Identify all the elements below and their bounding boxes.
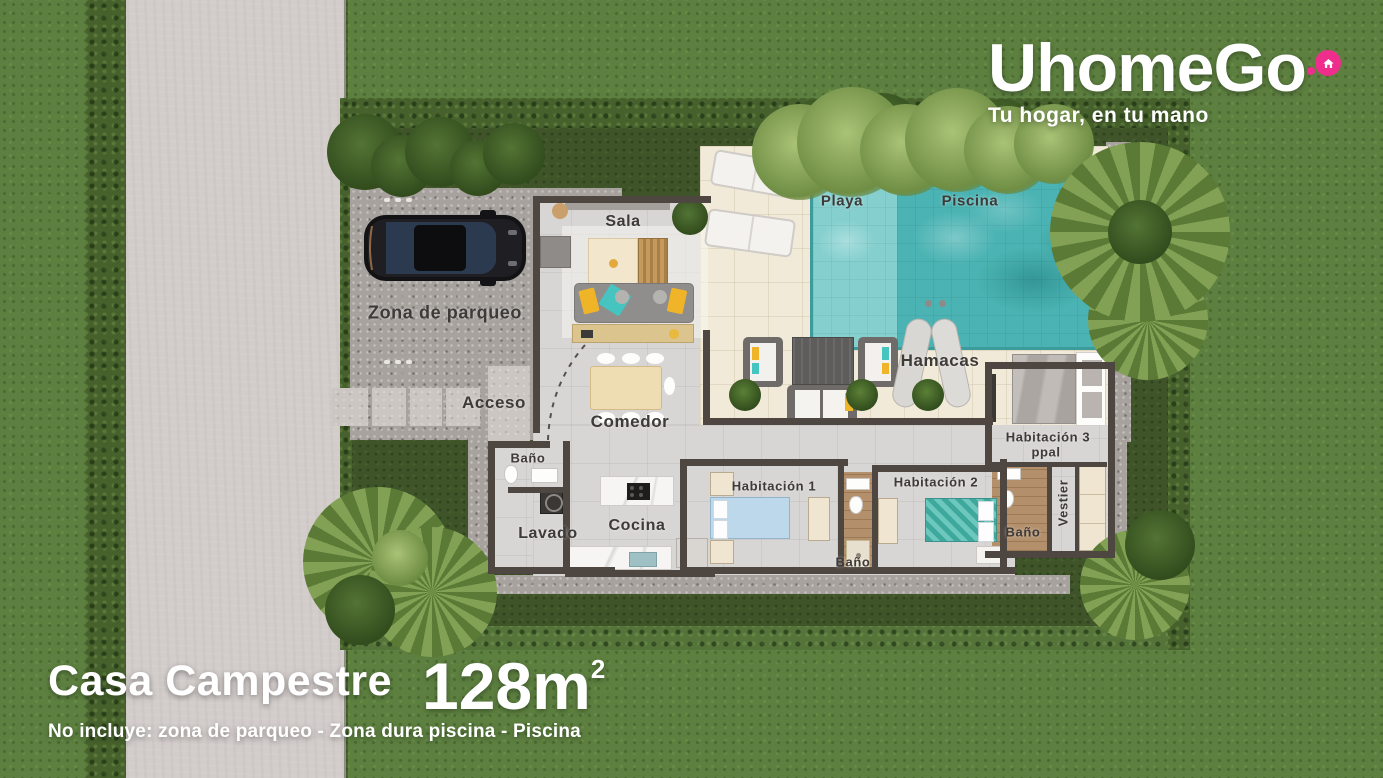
wall-segment [563,441,570,574]
listing-area-exponent: 2 [591,654,605,684]
room-label-piscina: Piscina [942,193,999,210]
bed-habitacion1 [710,497,790,539]
wall-segment [680,459,848,466]
side-table [540,236,571,268]
sink [846,478,870,490]
dining-chair [622,353,640,364]
room-label-acceso: Acceso [462,393,526,413]
wall-segment [680,459,687,574]
toilet [849,496,863,514]
logo-house-badge [1315,50,1341,76]
brand-tagline: Tu hogar, en tu mano [988,104,1306,128]
closet-habitacion2 [878,498,898,544]
paver [410,388,442,426]
room-label-lavado: Lavado [518,525,578,543]
wall-segment [703,418,993,425]
kitchen-island [600,476,674,506]
sink [531,468,558,483]
gravel-south-band [480,575,1070,594]
listing-area: 128m2 [422,656,605,717]
logo-accent-dot [1307,67,1315,75]
listing-title-block: Casa Campestre 128m2 No incluye: zona de… [48,656,605,743]
wall-segment [1108,362,1115,558]
curb-marks [384,198,414,202]
room-label-habitacion1: Habitación 1 [732,479,817,494]
room-label-bano-ppal: Baño [1006,525,1041,540]
listing-area-value: 128m [422,649,591,723]
room-label-bano-hab12: Baño [836,555,871,570]
wall-segment [985,362,992,465]
terrace-table [792,337,854,385]
wall-segment [1075,462,1079,554]
room-label-playa: Playa [821,193,863,210]
bush [672,199,708,235]
dining-chair [664,377,675,395]
wall-segment [533,196,540,433]
brand-logo-text: UhomeGo [988,34,1306,102]
hammock-anchors [925,300,951,308]
wall-segment [872,465,878,574]
potted-plant [729,379,761,411]
entry-dashed-path [540,340,610,450]
potted-plant [846,379,878,411]
wall-segment [1047,462,1052,554]
coffee-table-wood [638,238,668,286]
curb-marks [384,360,414,364]
brand-logo-block: UhomeGo Tu hogar, en tu mano [988,34,1306,128]
room-label-comedor: Comedor [591,412,670,432]
wall-segment [508,487,565,493]
bush [1125,510,1195,580]
wall-segment [703,330,710,425]
plant-pot [552,203,568,219]
closet-habitacion1 [808,497,830,541]
toilet [504,465,518,484]
dining-chair [646,353,664,364]
room-label-sala: Sala [605,213,640,231]
bed-habitacion2 [925,498,997,542]
room-label-habitacion3-sub: ppal [1031,445,1060,460]
sofa [574,283,694,323]
vestier-closet [1079,464,1106,551]
house-icon [1322,57,1335,70]
wall-segment [985,462,1107,467]
light-foliage [372,530,428,586]
bush [483,123,545,185]
wall-segment [985,362,1115,369]
coffee-table [588,238,638,286]
wall-segment [488,441,550,448]
nightstand [710,472,734,496]
potted-plant [912,379,944,411]
floor-plan-render: Sala Playa Piscina Zona de parqueo Acces… [0,0,1383,778]
listing-note: No incluye: zona de parqueo - Zona dura … [48,721,605,743]
bush [1108,200,1172,264]
nightstand [710,540,734,564]
room-label-habitacion2: Habitación 2 [894,475,979,490]
bush [325,575,395,645]
paver [372,388,406,426]
wall-segment [533,196,711,203]
car-top-view [362,210,530,291]
listing-name: Casa Campestre [48,656,392,708]
room-label-vestier: Vestier [1056,480,1071,527]
room-label-habitacion3: Habitación 3 [1006,430,1091,445]
room-label-hamacas: Hamacas [901,351,980,371]
wall-segment [488,441,495,574]
paver [332,388,368,426]
room-label-zona-parqueo: Zona de parqueo [368,303,522,324]
room-label-cocina: Cocina [609,517,666,535]
room-label-bano-servicio: Baño [511,451,546,466]
